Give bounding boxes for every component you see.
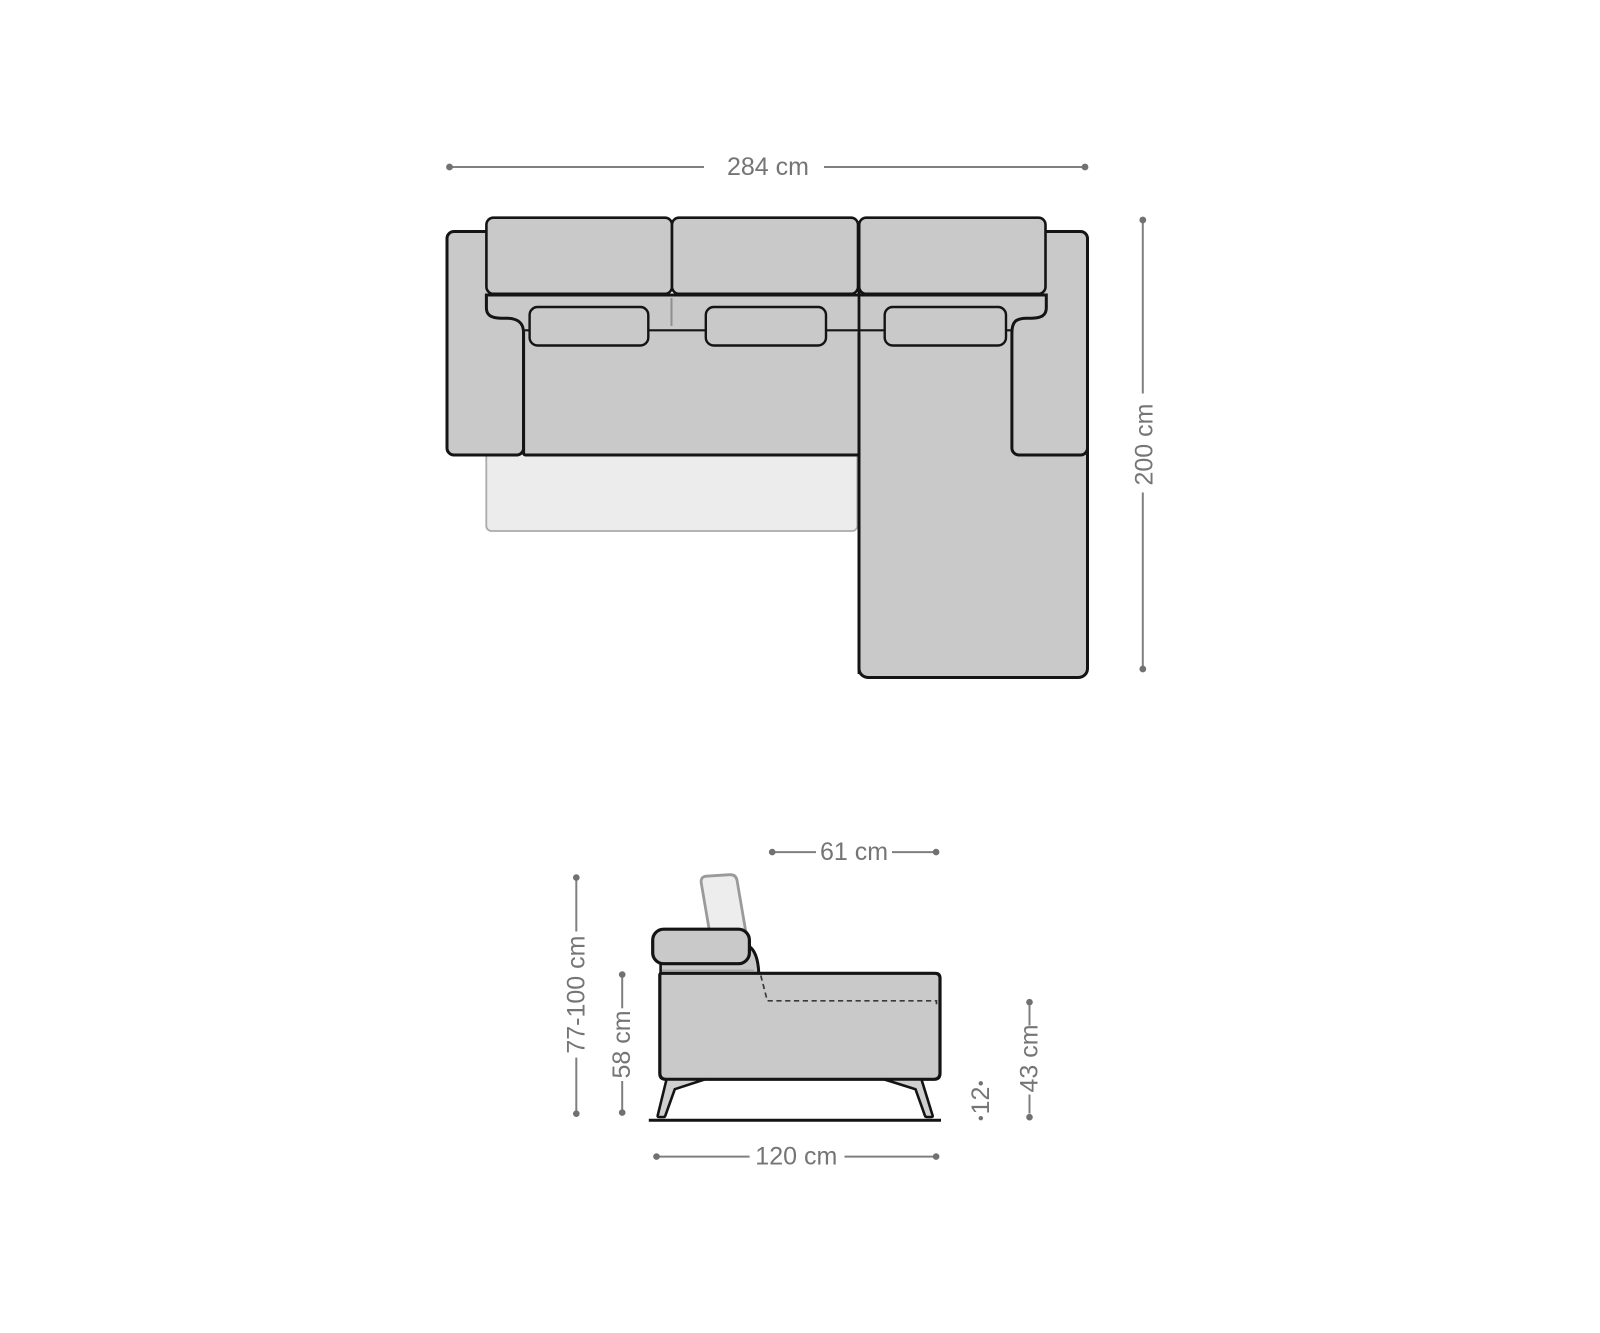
svg-text:200 cm: 200 cm (1131, 404, 1159, 486)
svg-text:284 cm: 284 cm (727, 153, 809, 181)
svg-text:120 cm: 120 cm (755, 1143, 837, 1171)
svg-text:61 cm: 61 cm (820, 838, 888, 866)
svg-text:58 cm: 58 cm (608, 1010, 636, 1078)
svg-text:12: 12 (967, 1087, 995, 1115)
svg-text:43 cm: 43 cm (1016, 1024, 1044, 1092)
svg-text:77-100 cm: 77-100 cm (562, 936, 590, 1054)
